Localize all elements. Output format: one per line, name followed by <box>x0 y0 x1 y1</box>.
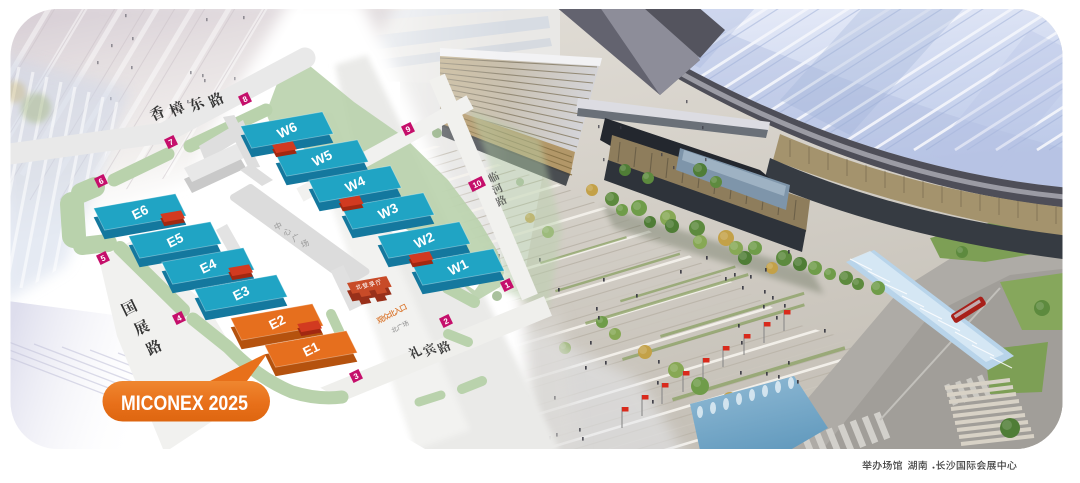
svg-text:MICONEX 2025: MICONEX 2025 <box>121 391 248 415</box>
